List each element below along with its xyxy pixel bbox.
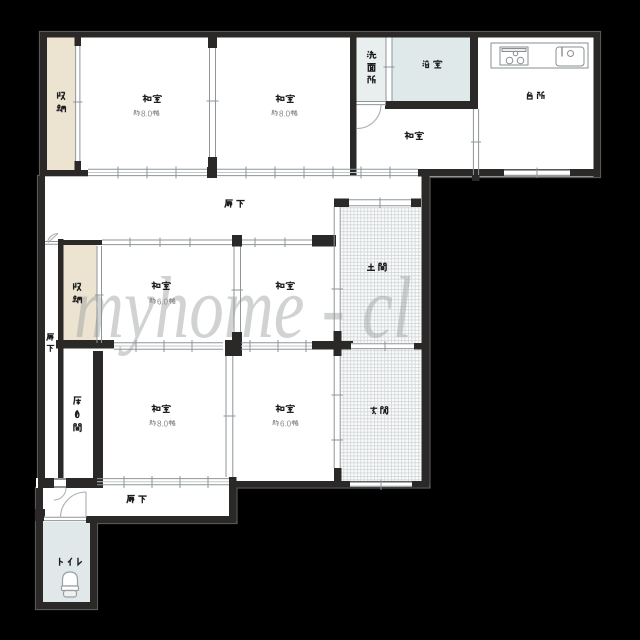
svg-text:8.0: 8.0	[157, 419, 169, 428]
svg-text:6.0: 6.0	[280, 419, 292, 428]
svg-text:8.0: 8.0	[279, 109, 291, 118]
svg-text:6.0: 6.0	[157, 297, 169, 306]
svg-text:8.0: 8.0	[141, 109, 153, 118]
